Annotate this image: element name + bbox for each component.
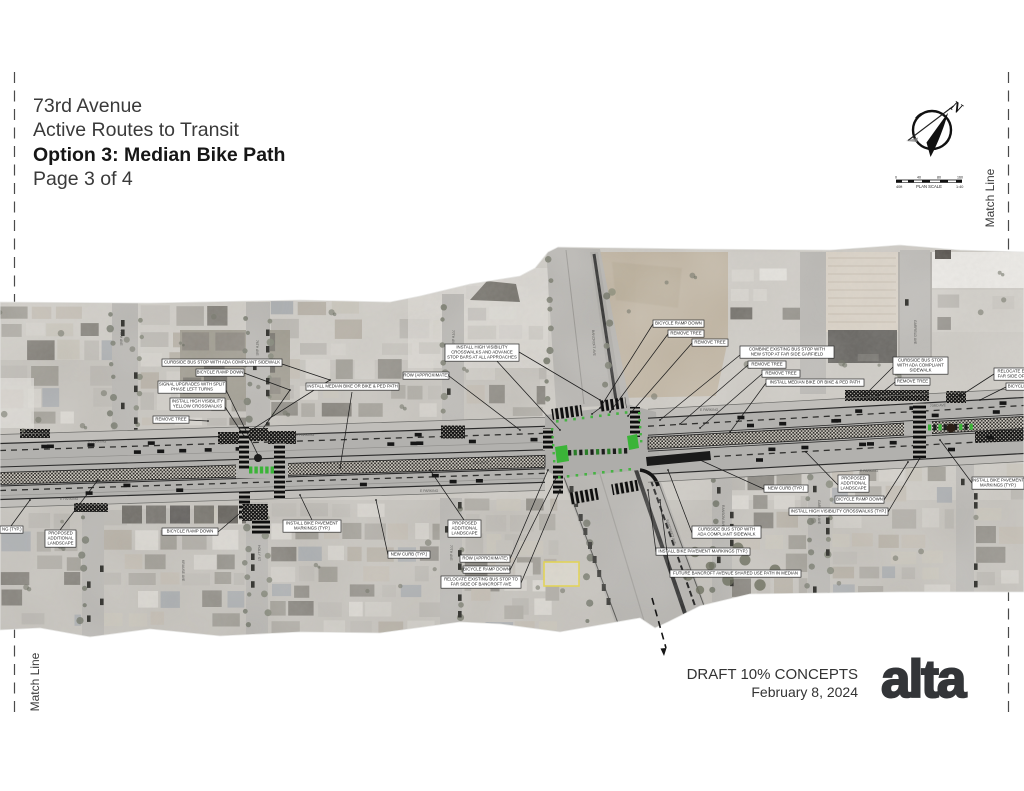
svg-text:LANDSCAPE: LANDSCAPE [47,540,73,545]
svg-text:E PARKING: E PARKING [60,497,79,501]
svg-text:LANDSCAPE: LANDSCAPE [840,485,866,490]
svg-text:0: 0 [895,176,897,180]
svg-text:FUTURE BANCROFT AVENUE SHARED: FUTURE BANCROFT AVENUE SHARED USE PATH I… [673,570,798,575]
svg-text:INSTALL MEDIAN BIKE OR BIKE &: INSTALL MEDIAN BIKE OR BIKE & PED PATH [770,379,861,384]
svg-text:BICYCLE RAMP DOWN: BICYCLE RAMP DOWN [836,496,883,501]
svg-text:160: 160 [957,176,963,180]
svg-text:KRAUSE AVE: KRAUSE AVE [181,560,185,582]
svg-text:ADA COMPLIANT SIDEWALK: ADA COMPLIANT SIDEWALK [697,531,755,536]
svg-text:HOLLY ST: HOLLY ST [257,545,261,561]
svg-text:REMOVE TREE: REMOVE TREE [765,370,796,375]
svg-text:INSTALL MEDIAN BIKE OR BIKE &: INSTALL MEDIAN BIKE OR BIKE & PED PATH [307,383,398,388]
svg-text:PLAN SCALE: PLAN SCALE [916,184,942,189]
svg-text:REMOVE TREE: REMOVE TREE [694,339,725,344]
svg-text:LANDSCAPE: LANDSCAPE [451,530,477,535]
svg-text:40: 40 [917,176,921,180]
svg-text:73RD AVE: 73RD AVE [472,460,489,465]
svg-text:BICYCLE RAMP DOWN: BICYCLE RAMP DOWN [655,320,702,325]
svg-text:FAR SIDE OF: FAR SIDE OF [998,373,1024,378]
svg-text:NEW STOP AT FAR SIDE GARFIELD: NEW STOP AT FAR SIDE GARFIELD [751,351,823,356]
svg-text:NG (TYP.): NG (TYP.) [2,526,22,531]
svg-text:MARKINGS (TYP.): MARKINGS (TYP.) [294,525,331,530]
svg-text:INSTALL HIGH VISIBILITY CROSSW: INSTALL HIGH VISIBILITY CROSSWALKS (TYP.… [791,508,887,513]
svg-text:REMOVE TREE: REMOVE TREE [670,330,701,335]
svg-text:76TH AVE: 76TH AVE [255,340,259,356]
svg-text:E PARKING: E PARKING [860,469,879,473]
svg-text:75TH AVE: 75TH AVE [119,330,123,346]
svg-text:MARKINGS (TYP.): MARKINGS (TYP.) [980,482,1017,487]
svg-text:BICYCLE: BICYCLE [1008,383,1024,388]
svg-text:BICYCLE RAMP DOWN: BICYCLE RAMP DOWN [197,369,244,374]
svg-text:BICYCLE RAMP DOWN: BICYCLE RAMP DOWN [167,528,214,533]
svg-text:REMOVE TREE: REMOVE TREE [751,361,782,366]
svg-text:ROW (APPROXIMATE): ROW (APPROXIMATE) [462,555,508,560]
svg-text:40ft: 40ft [896,185,903,189]
svg-text:STOP BARS AT ALL APPROACHES: STOP BARS AT ALL APPROACHES [447,354,517,359]
svg-text:E PARKING: E PARKING [420,489,439,493]
svg-text:80: 80 [937,176,941,180]
svg-text:E PARKING: E PARKING [296,433,315,437]
svg-text:REMOVE TREE: REMOVE TREE [155,416,186,421]
svg-text:GARFIELD AVE: GARFIELD AVE [913,320,917,345]
svg-text:NEW CURB (TYP.): NEW CURB (TYP.) [768,485,805,490]
svg-text:77TH AVE: 77TH AVE [449,545,453,561]
svg-text:SIDEWALK: SIDEWALK [909,367,931,372]
svg-text:INSTALL BIKE PAVEMENT MARKINGS: INSTALL BIKE PAVEMENT MARKINGS (TYP.) [658,548,748,553]
svg-text:BICYCLE RAMP DOWN: BICYCLE RAMP DOWN [463,566,510,571]
svg-text:FAR SIDE OF BANCROFT AVE: FAR SIDE OF BANCROFT AVE [451,581,512,586]
svg-text:YELLOW CROSSWALKS: YELLOW CROSSWALKS [173,403,222,408]
svg-text:RANSOM AVE: RANSOM AVE [721,505,725,528]
svg-text:1:40: 1:40 [956,185,963,189]
svg-text:NEW CURB (TYP.): NEW CURB (TYP.) [391,551,428,556]
svg-text:E PARKING: E PARKING [700,408,719,412]
svg-text:N: N [946,98,966,118]
svg-text:REMOVE TREE: REMOVE TREE [897,378,928,383]
svg-text:E PARKING: E PARKING [88,440,107,444]
svg-text:CURBSIDE BUS STOP WITH ADA COM: CURBSIDE BUS STOP WITH ADA COMPLIANT SID… [164,359,280,364]
svg-text:alta: alta [881,650,967,709]
svg-text:PHASE LEFT TURNS: PHASE LEFT TURNS [171,386,213,391]
svg-text:ROW (APPROXIMATE): ROW (APPROXIMATE) [403,372,449,377]
